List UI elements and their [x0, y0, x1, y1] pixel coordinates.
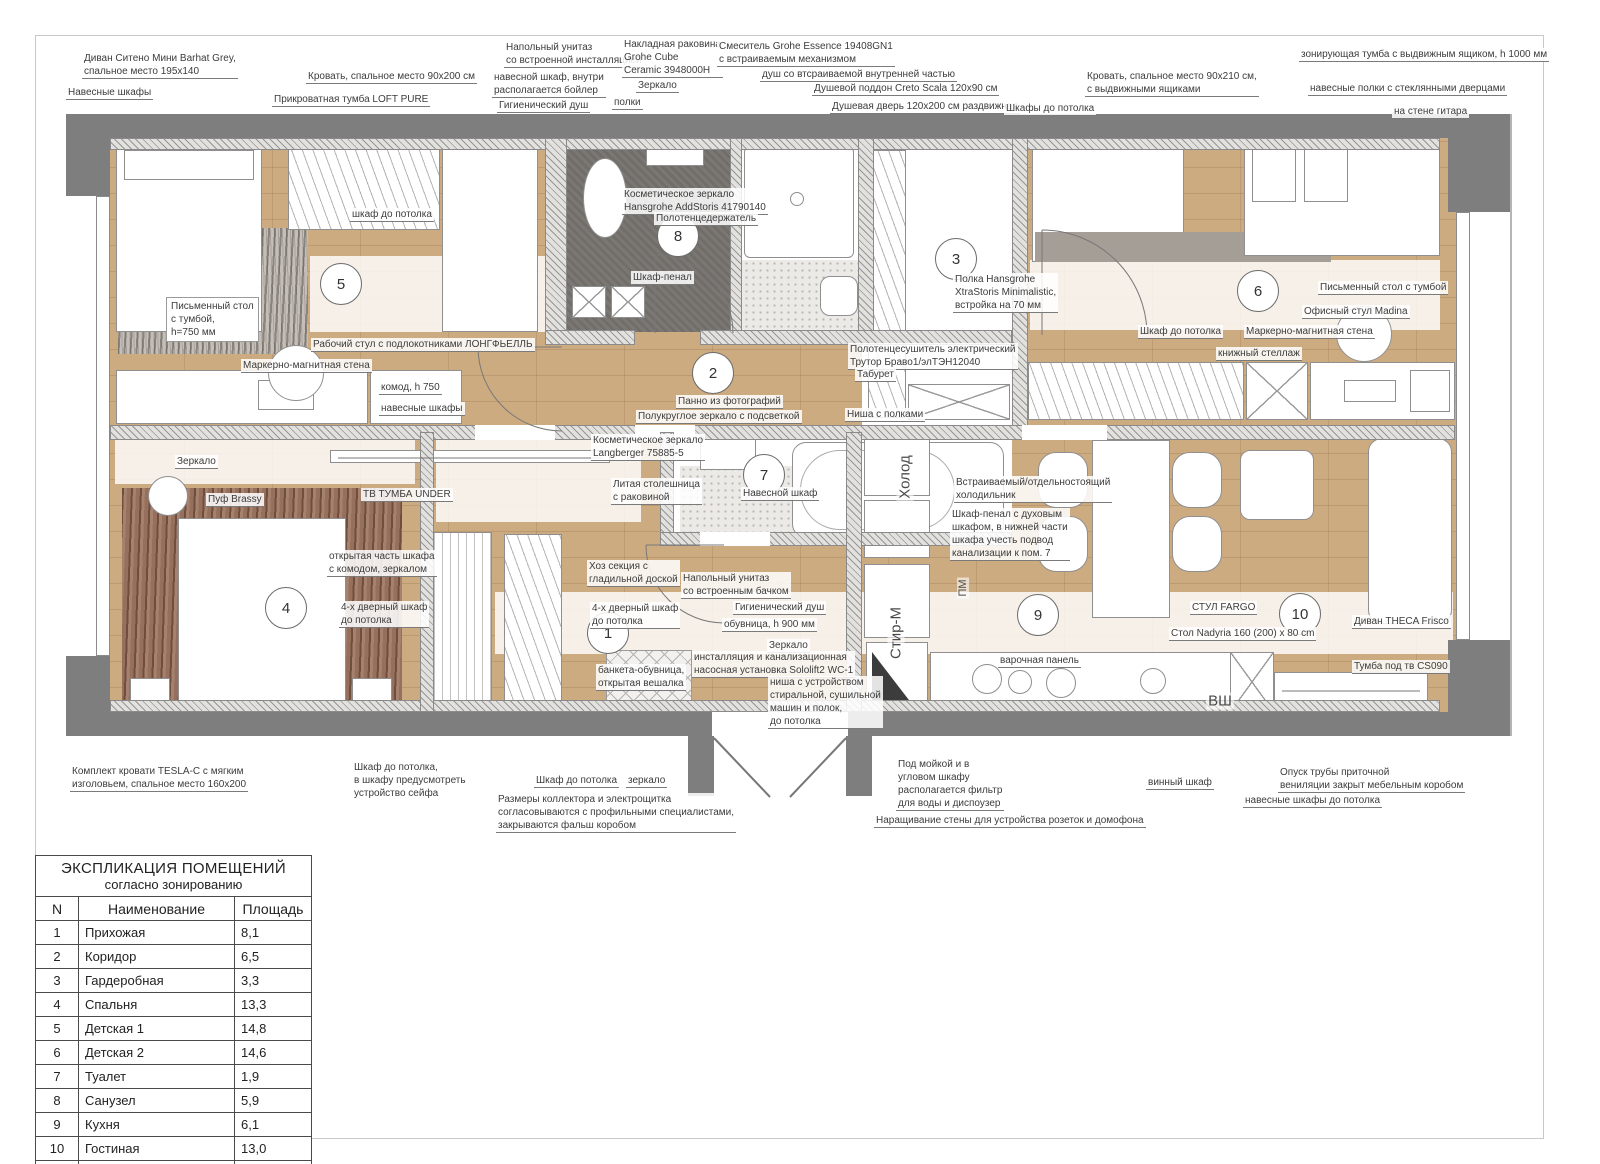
- wall-corner-tl: [66, 114, 110, 196]
- shower-drain: [790, 192, 804, 206]
- annotation-label: Душевая дверь 120x200 см раздвижная: [830, 100, 1020, 114]
- annotation-label: на стене гитара: [1392, 105, 1469, 119]
- cell-number: 10: [36, 1137, 79, 1161]
- annotation-label: Под мойкой и в угловом шкафу располагает…: [896, 758, 1004, 811]
- appliance-label: ПМ: [957, 577, 969, 598]
- table-title-line1: ЭКСПЛИКАЦИЯ ПОМЕЩЕНИЙ: [38, 860, 309, 877]
- annotation-label: Хоз секция с гладильной доской: [587, 560, 680, 587]
- floor-plan-sheet: Диван Ситено Мини Barhat Grey, спальное …: [0, 0, 1600, 1164]
- annotation-label: 4-х дверный шкаф до потолка: [590, 602, 680, 629]
- annotation-label: Кровать, спальное место 90x200 см: [306, 70, 477, 84]
- annotation-label: Табурет: [855, 368, 896, 382]
- cell-room-name: Детская 1: [79, 1017, 235, 1041]
- annotation-label: винный шкаф: [1146, 776, 1214, 790]
- cell-area: 8,1: [235, 921, 312, 945]
- annotation-label: Полукруглое зеркало с подсветкой: [636, 410, 802, 424]
- annotation-label: Шкаф до потолка, в шкафу предусмотреть у…: [352, 761, 468, 800]
- annotation-label: банкета-обувница, открытая вешалка: [596, 664, 686, 691]
- cell-area: 5,9: [235, 1089, 312, 1113]
- annotation-label: ТВ ТУМБА UNDER: [361, 488, 453, 502]
- cell-area: 6,5: [235, 945, 312, 969]
- table-title-line2: согласно зонированию: [38, 877, 309, 892]
- col-header-area: Площадь: [235, 897, 312, 921]
- hall-closet: [504, 534, 562, 706]
- cell-area: 14,6: [235, 1041, 312, 1065]
- door-opening: [475, 425, 555, 440]
- appliance-label: ВШ: [1206, 693, 1234, 710]
- room-number-2: 2: [692, 352, 734, 394]
- pouf: [148, 476, 188, 516]
- annotation-label: Накладная раковина Grohe Cube Ceramic 39…: [622, 38, 723, 78]
- dining-table: [1092, 440, 1170, 618]
- annotation-label: СТУЛ FARGO: [1190, 601, 1257, 615]
- dining-chair: [1172, 452, 1222, 508]
- col-header-n: N: [36, 897, 79, 921]
- annotation-label: ниша с устройством стиральной, сушильной…: [768, 676, 883, 729]
- wardrobe-children2: [1028, 362, 1244, 420]
- dining-chair: [1172, 516, 1222, 572]
- annotation-label: Размеры коллектора и электрощитка соглас…: [496, 793, 736, 833]
- annotation-label: Шкаф до потолка: [534, 774, 619, 788]
- table-title: ЭКСПЛИКАЦИЯ ПОМЕЩЕНИЙ согласно зонирован…: [36, 856, 312, 897]
- cell-area: 13,0: [235, 1137, 312, 1161]
- table-header-row: N Наименование Площадь: [36, 897, 312, 921]
- wall-int: [730, 138, 742, 332]
- annotation-label: навесные полки с стеклянными дверцами: [1308, 82, 1507, 96]
- cell-room-name: Туалет: [79, 1065, 235, 1089]
- annotation-label: навесной шкаф, внутри располагается бойл…: [492, 71, 606, 98]
- table-row: 10Гостиная13,0: [36, 1137, 312, 1161]
- shower-cabinet: [611, 286, 645, 318]
- annotation-label: Ниша с полками: [845, 408, 925, 422]
- table-row: 1Прихожая8,1: [36, 921, 312, 945]
- annotation-label: Комплект кровати TESLA-C с мягким изголо…: [70, 765, 248, 792]
- annotation-label: Шкаф-пенал с духовым шкафом, в нижней ча…: [950, 508, 1070, 561]
- cell-room-name: Гостиная: [79, 1137, 235, 1161]
- annotation-label: Полотенцесушитель электрический Трутор Б…: [848, 343, 1018, 370]
- cell-room-name: Гардеробная: [79, 969, 235, 993]
- desk-children1: [116, 370, 368, 424]
- cell-area: 6,1: [235, 1113, 312, 1137]
- annotation-label: навесные шкафы: [379, 402, 465, 416]
- annotation-label: книжный стеллаж: [1216, 347, 1302, 361]
- annotation-label: Диван Ситено Мини Barhat Grey, спальное …: [82, 52, 238, 79]
- total-area: 87,5 м²: [235, 1161, 312, 1164]
- cell-number: 2: [36, 945, 79, 969]
- hob-burner: [972, 664, 1002, 694]
- desk-chair-children1: [268, 345, 324, 401]
- annotation-label: Шкаф до потолка: [1138, 325, 1223, 339]
- annotation-label: Прикроватная тумба LOFT PURE: [272, 93, 430, 107]
- annotation-label: зеркало: [626, 774, 667, 788]
- cell-room-name: Спальня: [79, 993, 235, 1017]
- annotation-label: Стол Nadyria 160 (200) x 80 cm: [1169, 627, 1316, 641]
- cell-number: 6: [36, 1041, 79, 1065]
- door-opening: [1022, 425, 1107, 440]
- annotation-label: Косметическое зеркало Hansgrohe AddStori…: [622, 188, 768, 215]
- pillow: [124, 150, 254, 180]
- annotation-label: Письменный стол с тумбой: [1318, 281, 1448, 295]
- annotation-label: Маркерно-магнитная стена: [1244, 325, 1375, 339]
- cell-area: 14,8: [235, 1017, 312, 1041]
- toilet: [583, 158, 627, 238]
- wall-corner-bl: [66, 656, 110, 736]
- cell-number: 3: [36, 969, 79, 993]
- kitchen-sink: [1046, 668, 1076, 698]
- annotation-label: Гигиенический душ: [733, 601, 826, 615]
- pillow: [1304, 148, 1348, 202]
- keyboard: [1344, 380, 1396, 402]
- table-row: 6Детская 214,6: [36, 1041, 312, 1065]
- cell-room-name: Кухня: [79, 1113, 235, 1137]
- annotation-label: Тумба под тв CS090: [1352, 660, 1450, 674]
- cell-number: 8: [36, 1089, 79, 1113]
- cell-number: 4: [36, 993, 79, 1017]
- annotation-label: обувница, h 900 мм: [722, 618, 817, 632]
- annotation-label: Смеситель Grohe Essence 19408GN1 с встра…: [717, 40, 895, 67]
- table-row: 8Санузел5,9: [36, 1089, 312, 1113]
- cell-room-name: Санузел: [79, 1089, 235, 1113]
- wall-corner-tr: [1448, 114, 1512, 212]
- annotation-label: комод, h 750: [379, 381, 442, 395]
- annotation-label: душ со втсраиваемой внутренней частью: [760, 68, 957, 82]
- desk-cabinet: [1410, 370, 1450, 412]
- annotation-label: Литая столешница с раковиной: [611, 478, 702, 505]
- annotation-label: Полка Hansgrohe XtraStoris Minimalistic,…: [953, 273, 1058, 313]
- annotation-label: Кровать, спальное место 90x210 см, с выд…: [1085, 70, 1259, 97]
- annotation-label: Гигиенический душ: [497, 99, 590, 113]
- room-number-6: 6: [1237, 270, 1279, 312]
- entrance-pier: [688, 736, 714, 796]
- bed2-children1: [442, 142, 538, 332]
- entrance-pier: [846, 736, 872, 796]
- annotation-label: Полотенцедержатель: [654, 212, 758, 226]
- annotation-label: Зеркало: [175, 455, 218, 469]
- wall-top: [68, 114, 1460, 138]
- annotation-label: Маркерно-магнитная стена: [241, 359, 372, 373]
- annotation-label: Зеркало: [636, 79, 679, 93]
- annotation-label: Встраиваемый/отдельностоящий холодильник: [954, 476, 1112, 503]
- table-row: 3Гардеробная3,3: [36, 969, 312, 993]
- tv-console: [330, 450, 610, 463]
- cell-room-name: Детская 2: [79, 1041, 235, 1065]
- annotation-label: Шкафы до потолка: [1004, 102, 1096, 116]
- cell-area: 13,3: [235, 993, 312, 1017]
- tall-cabinet: [864, 500, 930, 558]
- annotation-label: Диван THECA Frisco: [1352, 615, 1451, 629]
- armchair: [1240, 450, 1314, 520]
- cell-number: 7: [36, 1065, 79, 1089]
- annotation-label: Рабочий стул с подлокотниками ЛОНГФЬЕЛЛЬ: [311, 338, 535, 352]
- balcony-line: [1510, 114, 1512, 736]
- table-row: 2Коридор6,5: [36, 945, 312, 969]
- col-header-name: Наименование: [79, 897, 235, 921]
- cell-area: 3,3: [235, 969, 312, 993]
- annotation-label: инсталляция и канализационная насосная у…: [692, 651, 855, 678]
- wall-int: [858, 138, 874, 332]
- cell-area: 1,9: [235, 1065, 312, 1089]
- room-schedule-table: ЭКСПЛИКАЦИЯ ПОМЕЩЕНИЙ согласно зонирован…: [35, 855, 312, 1164]
- sofa: [1368, 438, 1452, 624]
- window-right: [1456, 212, 1470, 640]
- annotation-label: Опуск трубы приточной вениляции закрыт м…: [1278, 766, 1465, 793]
- annotation-label: Косметическое зеркало Langberger 75885-5: [591, 434, 705, 461]
- annotation-label: варочная панель: [998, 654, 1081, 668]
- room-number-5: 5: [320, 263, 362, 305]
- annotation-label: открытая часть шкафа с комодом, зеркалом: [327, 550, 437, 577]
- wall-hatch-top: [110, 138, 1440, 150]
- table-row: 4Спальня13,3: [36, 993, 312, 1017]
- pillow: [1252, 148, 1296, 202]
- cell-number: 1: [36, 921, 79, 945]
- annotation-label: зонирующая тумба с выдвижным ящиком, h 1…: [1299, 48, 1549, 62]
- annotation-label: навесные шкафы до потолка: [1243, 794, 1382, 808]
- annotation-label: Панно из фотографий: [676, 395, 783, 409]
- cell-number: 5: [36, 1017, 79, 1041]
- window-left: [96, 196, 110, 656]
- annotation-label: Пуф Brassy: [206, 493, 264, 507]
- table-row: 9Кухня6,1: [36, 1113, 312, 1137]
- wall-int: [545, 138, 567, 332]
- appliance-label: Стир-М: [888, 605, 905, 661]
- table-row: 7Туалет1,9: [36, 1065, 312, 1089]
- annotation-label: Офисный стул Madina: [1302, 305, 1410, 319]
- bed-main: [178, 518, 346, 714]
- cell-room-name: Прихожая: [79, 921, 235, 945]
- annotation-label: Навесной шкаф: [741, 487, 819, 501]
- appliance-label: Холод: [897, 453, 914, 501]
- door-opening: [700, 532, 770, 546]
- cell-room-name: Коридор: [79, 945, 235, 969]
- cell-number: 9: [36, 1113, 79, 1137]
- shower-cabinet: [572, 286, 606, 318]
- room-number-9: 9: [1017, 594, 1059, 636]
- annotation-label: Наращивание стены для устройства розеток…: [874, 814, 1146, 828]
- wall-mid: [110, 425, 1455, 440]
- hob-burner: [1008, 670, 1032, 694]
- table-row: 5Детская 114,8: [36, 1017, 312, 1041]
- wine-fridge: [1140, 668, 1166, 694]
- annotation-label: Напольный унитаз со встроенным бачком: [681, 572, 791, 599]
- annotation-label: Письменный стол с тумбой, h=750 мм: [166, 297, 259, 342]
- annotation-label: 4-х дверный шкаф до потолка: [339, 601, 429, 628]
- annotation-label: полки: [612, 96, 643, 110]
- annotation-label: Душевой поддон Creto Scala 120x90 см: [812, 82, 999, 96]
- table-total-row: 87,5 м²: [36, 1161, 312, 1164]
- room-number-4: 4: [265, 587, 307, 629]
- annotation-label: Навесные шкафы: [66, 86, 153, 100]
- annotation-label: шкаф до потолка: [350, 208, 434, 222]
- stool: [820, 276, 858, 316]
- annotation-label: Шкаф-пенал: [631, 271, 694, 285]
- wall-int: [545, 330, 635, 345]
- bookcase: [1246, 362, 1308, 420]
